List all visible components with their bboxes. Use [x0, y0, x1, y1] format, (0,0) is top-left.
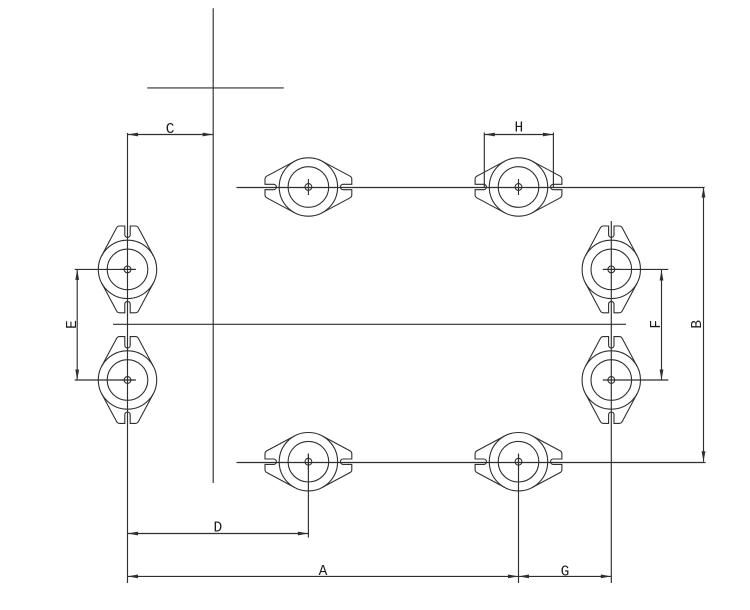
svg-text:H: H [514, 121, 523, 137]
svg-text:D: D [213, 521, 222, 537]
svg-text:A: A [319, 564, 328, 580]
svg-text:E: E [65, 320, 81, 329]
svg-text:G: G [561, 564, 570, 580]
svg-text:C: C [166, 122, 175, 138]
svg-text:F: F [649, 320, 665, 329]
svg-text:B: B [690, 320, 706, 329]
